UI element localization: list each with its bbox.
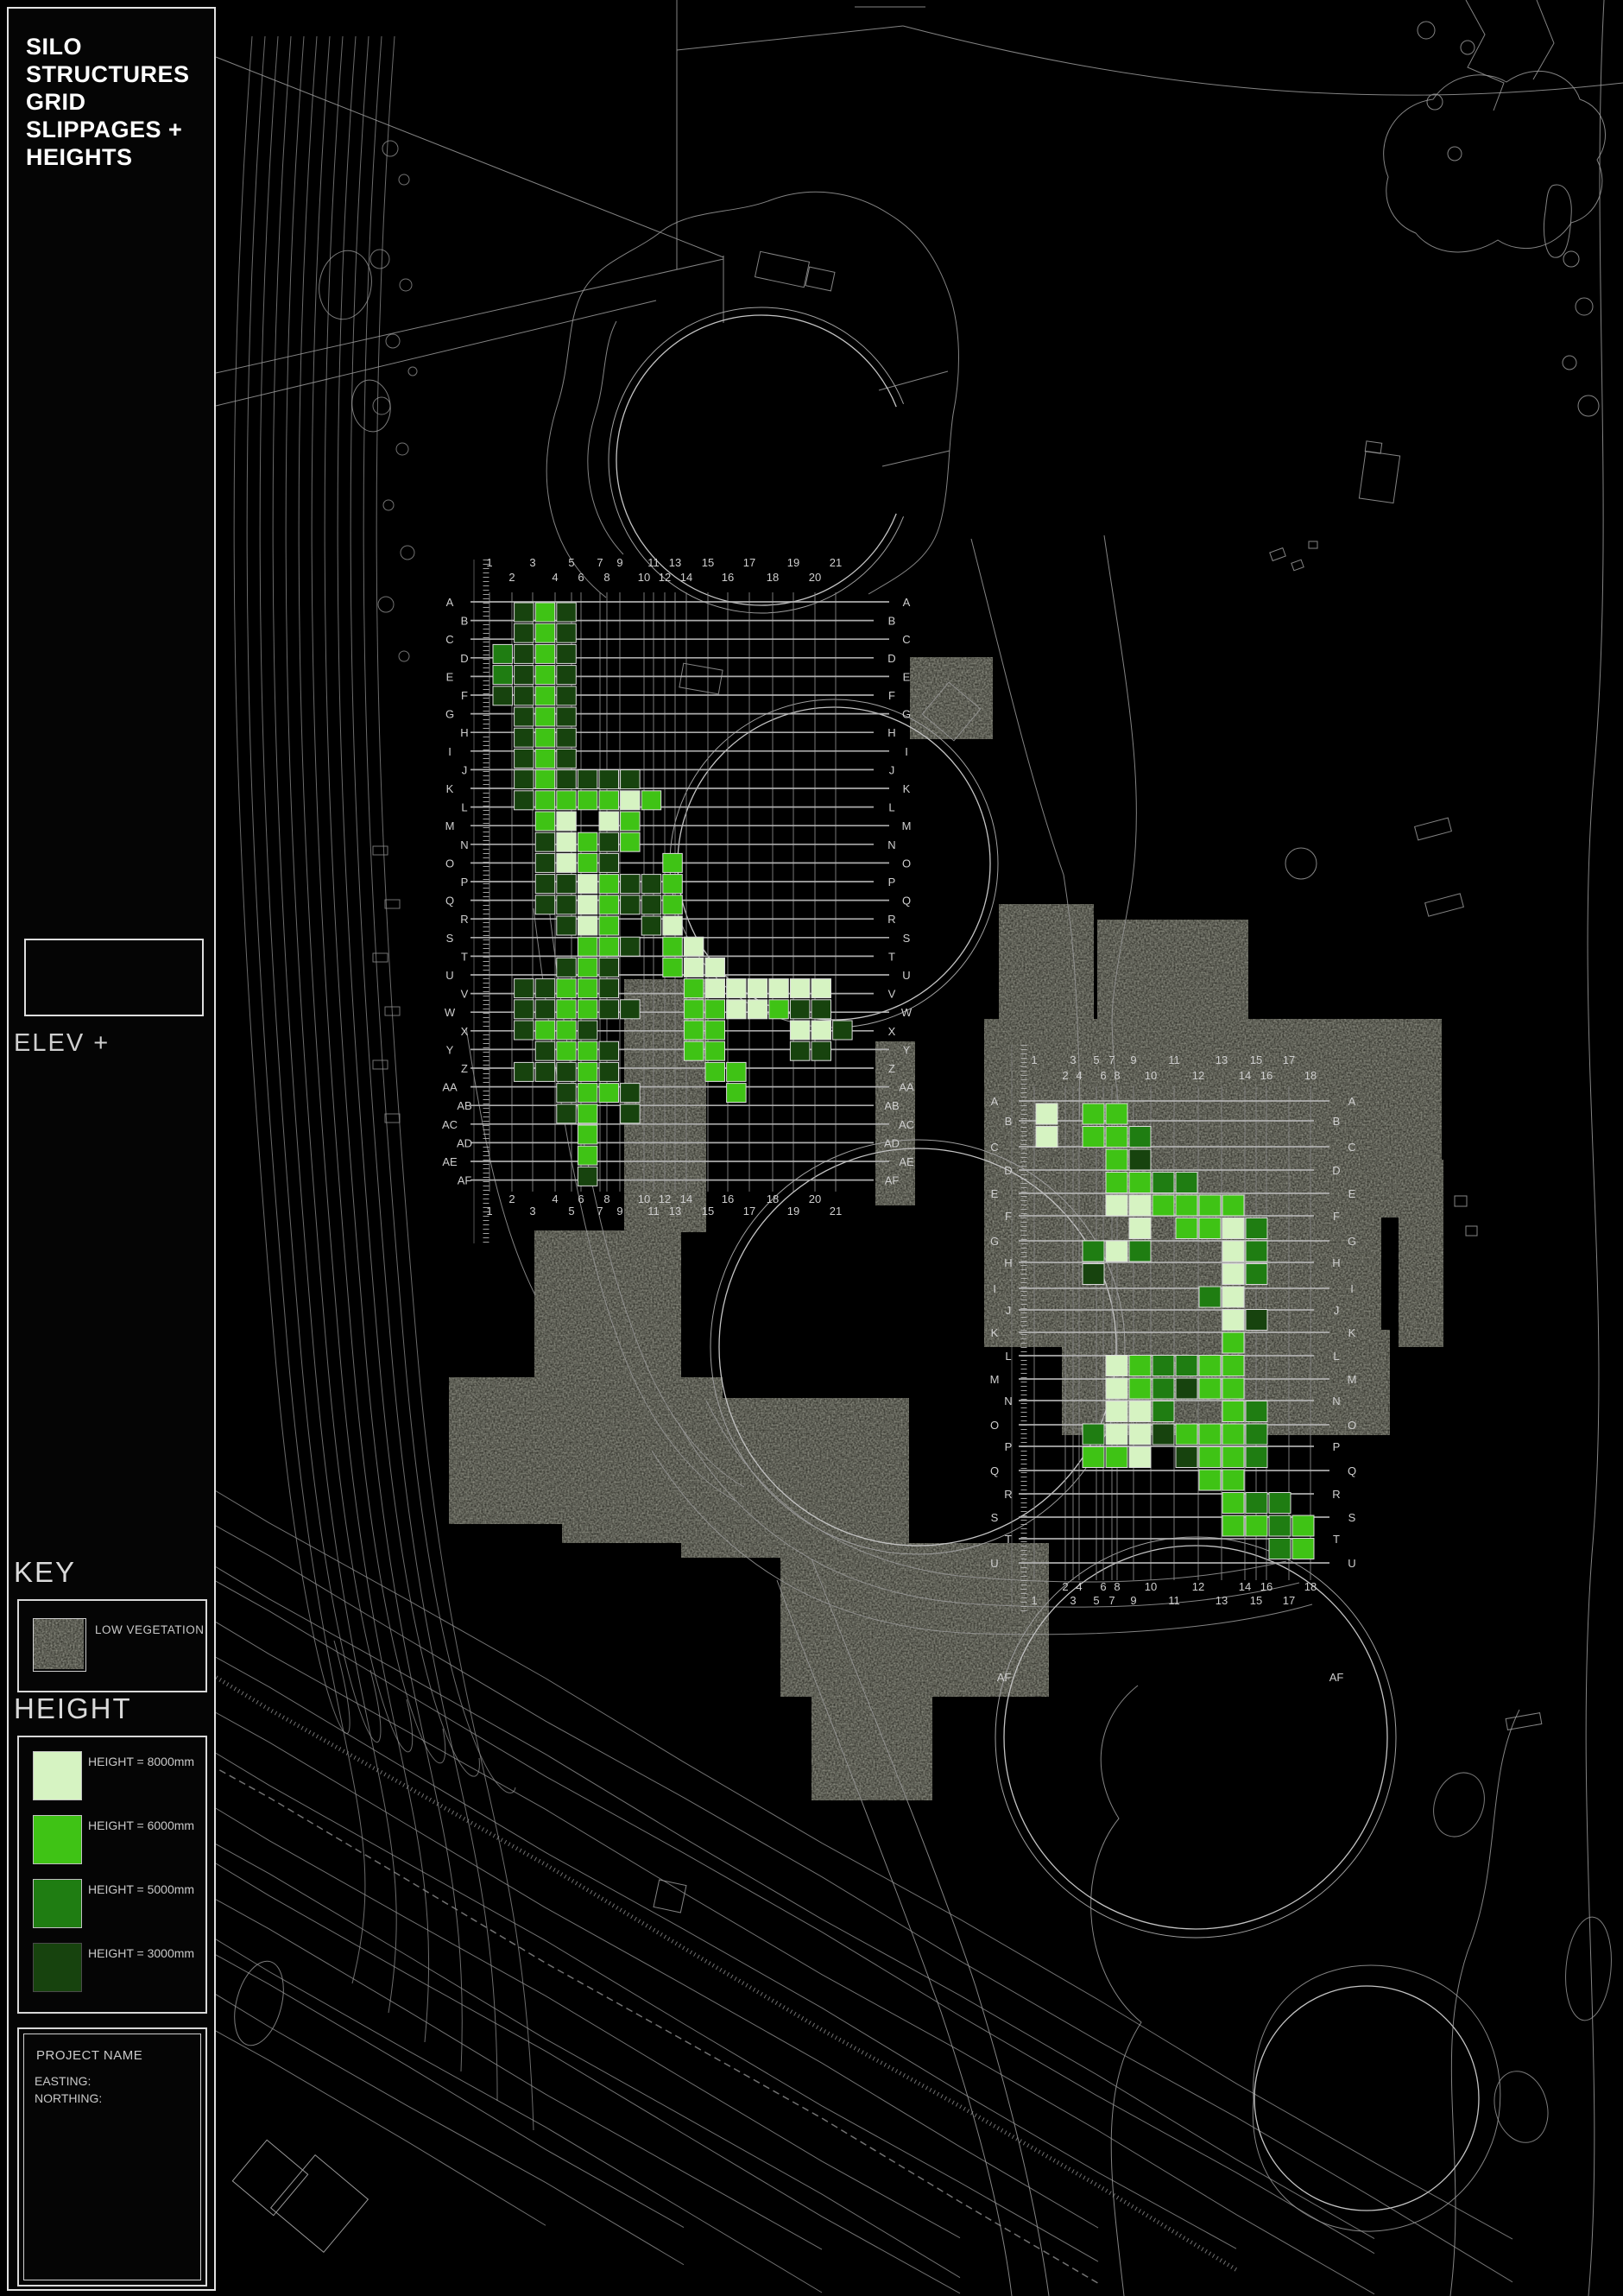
building-outline [1506, 1713, 1542, 1730]
building-outline [679, 663, 723, 694]
height-cell [1153, 1378, 1174, 1399]
shore-structure [373, 1060, 388, 1069]
grid-label: K [903, 782, 911, 795]
shore-clump [400, 279, 412, 291]
height-cell [1199, 1195, 1221, 1216]
contour-path [1091, 1686, 1141, 2296]
grid-label: N [1332, 1395, 1340, 1407]
grid-label: 19 [787, 1205, 799, 1218]
height-cell [1222, 1332, 1244, 1353]
grid-label: 7 [597, 556, 603, 569]
grid-label: 3 [1070, 1594, 1076, 1607]
contour-blob [1461, 41, 1475, 54]
shore-clump [378, 597, 394, 612]
height-cell [684, 979, 704, 998]
height-cell [557, 644, 577, 663]
height-cell [1129, 1195, 1151, 1216]
height-cell [535, 895, 555, 914]
grid-label: 13 [669, 556, 681, 569]
height-cell [557, 686, 577, 705]
grid-label: AF [885, 1174, 900, 1187]
contour-path [1586, 0, 1604, 2296]
height-cell [1222, 1515, 1244, 1536]
height-cell [1222, 1424, 1244, 1445]
shore-clump [370, 250, 389, 269]
shore-clump [401, 546, 414, 560]
height-cell [599, 937, 619, 956]
silo-circle [1254, 1986, 1479, 2211]
height-cell [1176, 1218, 1197, 1239]
height-cell [790, 1000, 810, 1019]
grid-label: D [887, 652, 895, 665]
grid-label: B [1333, 1115, 1341, 1128]
easting-label: EASTING: [35, 2074, 91, 2088]
vegetation-patch-texture [910, 657, 993, 739]
grid-label: A [991, 1095, 999, 1108]
height-cell [557, 979, 577, 998]
height-cell [1246, 1493, 1267, 1514]
grid-label: M [445, 819, 455, 832]
grid-label: H [460, 726, 468, 739]
height-cell [1222, 1401, 1244, 1422]
grid-label: 10 [638, 1192, 650, 1205]
grid-label: 9 [616, 1205, 622, 1218]
vegetation-patch-texture [449, 1377, 562, 1524]
building-outline [1425, 894, 1464, 916]
height-cell [1222, 1310, 1244, 1331]
grid-label: K [1348, 1326, 1356, 1339]
height-cell [1083, 1424, 1104, 1445]
contour-path [546, 192, 958, 598]
contour-blob [1576, 298, 1593, 315]
building-outline [805, 267, 835, 291]
height-cell [1106, 1378, 1127, 1399]
building-outline [755, 251, 810, 287]
height-cell [557, 603, 577, 622]
contour-path [260, 36, 381, 1743]
grid-label: I [448, 745, 452, 758]
vegetation-patch-texture [811, 1692, 932, 1800]
height-cell [1222, 1470, 1244, 1490]
height-cell [557, 1021, 577, 1040]
grid-label: AE [899, 1155, 914, 1168]
height-cell [557, 1000, 577, 1019]
height-cell [599, 1084, 619, 1103]
grid-label: 17 [743, 556, 755, 569]
height-cell [535, 707, 555, 726]
grid-label: B [461, 615, 469, 628]
height-cell [578, 1167, 597, 1186]
grid-label: W [445, 1006, 456, 1019]
grid-label: Y [446, 1043, 454, 1056]
height-cell [811, 1000, 831, 1019]
grid-label: Q [445, 895, 454, 908]
grid-label: 9 [1130, 1053, 1136, 1066]
height-cell [599, 916, 619, 935]
height-cell [535, 1000, 555, 1019]
height-swatch-label: HEIGHT = 8000mm [88, 1755, 194, 1768]
contour-path [131, 1572, 1374, 2294]
height-legend-item: HEIGHT = 3000mm [19, 1943, 205, 2003]
grid-label: H [1004, 1256, 1012, 1269]
height-swatch-label: HEIGHT = 3000mm [88, 1946, 194, 1960]
height-cell [1153, 1173, 1174, 1193]
height-cell [1199, 1378, 1221, 1399]
grid-label: 6 [1100, 1580, 1106, 1593]
height-cell [1036, 1127, 1058, 1148]
key-heading: KEY [14, 1556, 76, 1589]
shore-clump [386, 334, 400, 348]
grid-label: C [445, 633, 453, 646]
grid-label: L [1333, 1350, 1339, 1363]
height-cell [1153, 1356, 1174, 1376]
height-cell [833, 1021, 853, 1040]
height-cell [1153, 1424, 1174, 1445]
grid-label: M [902, 819, 912, 832]
grid-label: 7 [1108, 1594, 1115, 1607]
grid-label: D [1004, 1164, 1012, 1177]
contour-path [131, 1757, 960, 2238]
shore-clump [399, 651, 409, 661]
grid-label: D [1332, 1164, 1340, 1177]
grid-label: 11 [647, 556, 660, 569]
height-cell [515, 686, 534, 705]
shore-clump [373, 397, 390, 414]
height-cell [1199, 1470, 1221, 1490]
height-cell [578, 791, 597, 810]
height-cell [811, 1041, 831, 1060]
height-heading: HEIGHT [14, 1692, 132, 1725]
height-cell [515, 644, 534, 663]
height-legend-item: HEIGHT = 5000mm [19, 1879, 205, 1939]
title-line: SLIPPAGES + [26, 116, 190, 143]
grid-label: S [1348, 1511, 1356, 1524]
height-cell [641, 895, 661, 914]
height-cell [663, 875, 683, 894]
grid-label: 16 [1260, 1069, 1273, 1082]
height-cell [705, 1021, 725, 1040]
height-cell [557, 875, 577, 894]
height-cell [515, 666, 534, 685]
grid-label: O [1348, 1419, 1356, 1432]
height-cell [684, 958, 704, 977]
height-cell [557, 895, 577, 914]
height-cell [663, 916, 683, 935]
grid-label: AB [457, 1099, 471, 1112]
grid-label: 7 [1108, 1053, 1115, 1066]
height-cell [1106, 1149, 1127, 1170]
height-cell [515, 728, 534, 747]
height-swatch [33, 1751, 82, 1800]
building-outline [1365, 441, 1381, 453]
grid-label: 12 [659, 1192, 671, 1205]
contour-path [299, 36, 428, 2042]
height-cell [663, 958, 683, 977]
grid-label: 3 [529, 1205, 535, 1218]
height-cell [641, 916, 661, 935]
height-cell [705, 1062, 725, 1081]
grid-label: 18 [767, 571, 779, 584]
height-cell [1292, 1515, 1314, 1536]
height-cell [1176, 1447, 1197, 1468]
height-cell [1269, 1539, 1291, 1559]
contour-path [247, 36, 365, 1983]
contour-blob [1563, 356, 1576, 370]
grid-label: AF [997, 1671, 1012, 1684]
height-cell [1153, 1401, 1174, 1422]
height-cell [663, 853, 683, 872]
building-outline [1455, 1196, 1467, 1206]
grid-label: C [990, 1141, 998, 1154]
grid-label: P [888, 876, 896, 889]
height-cell [535, 832, 555, 851]
height-cell [578, 979, 597, 998]
drawing-title: SILO STRUCTURES GRID SLIPPAGES + HEIGHTS [26, 33, 190, 171]
height-cell [1129, 1356, 1151, 1376]
height-cell [1246, 1424, 1267, 1445]
height-cell [1222, 1218, 1244, 1239]
height-cell [790, 1041, 810, 1060]
grid-label: 14 [1239, 1580, 1251, 1593]
height-cell [535, 666, 555, 685]
height-cell [769, 979, 789, 998]
grid-label: A [446, 596, 454, 609]
grid-label: 5 [568, 556, 574, 569]
grid-label: 21 [830, 556, 842, 569]
low-vegetation-swatch [33, 1618, 86, 1672]
height-cell [535, 770, 555, 789]
grid-label: O [990, 1419, 999, 1432]
grid-label: O [902, 857, 911, 870]
height-cell [1129, 1218, 1151, 1239]
height-cell [621, 875, 641, 894]
grid-label: C [1348, 1141, 1355, 1154]
height-cell [1129, 1447, 1151, 1468]
contour-path [216, 300, 656, 406]
height-cell [1106, 1401, 1127, 1422]
grid-label: AE [442, 1155, 458, 1168]
height-cell [1176, 1378, 1197, 1399]
height-cell [1199, 1447, 1221, 1468]
grid-label: 8 [603, 1192, 609, 1205]
drawing-sheet: 1122334455667788991010111112121313141415… [0, 0, 1623, 2296]
shore-clump [382, 141, 398, 156]
project-name-label: PROJECT NAME [36, 2048, 142, 2063]
height-cell [790, 979, 810, 998]
elevation-label: ELEV + [14, 1029, 110, 1058]
grid-label: 10 [1145, 1580, 1157, 1593]
height-cell [599, 791, 619, 810]
height-cell [1222, 1378, 1244, 1399]
height-cell [578, 1104, 597, 1123]
grid-label: E [991, 1187, 999, 1200]
contour-path [312, 36, 445, 1763]
height-cell [599, 812, 619, 831]
height-legend: HEIGHT = 8000mmHEIGHT = 6000mmHEIGHT = 5… [17, 1736, 207, 2014]
grid-label: Z [888, 1062, 895, 1075]
height-cell [1106, 1127, 1127, 1148]
height-cell [621, 1104, 641, 1123]
contour-path [131, 1626, 1236, 2269]
grid-label: 3 [1070, 1053, 1076, 1066]
height-cell [515, 603, 534, 622]
low-vegetation-label: LOW VEGETATION [95, 1623, 205, 1636]
grid-label: 9 [1130, 1594, 1136, 1607]
grid-label: P [1333, 1440, 1341, 1453]
grid-label: J [889, 763, 895, 776]
grid-label: 13 [669, 1205, 681, 1218]
grid-label: AA [442, 1081, 458, 1094]
grid-label: 11 [647, 1205, 660, 1218]
contour-path [131, 1666, 1098, 2228]
contour-path [131, 1534, 1374, 2253]
height-cell [727, 979, 747, 998]
grid-label: M [990, 1373, 1000, 1386]
height-cell [578, 916, 597, 935]
height-legend-item: HEIGHT = 6000mm [19, 1815, 205, 1875]
grid-label: 18 [1304, 1069, 1317, 1082]
height-cell [599, 958, 619, 977]
height-cell [578, 1041, 597, 1060]
height-cell [811, 1021, 831, 1040]
height-cell [493, 666, 513, 685]
height-cell [599, 853, 619, 872]
grid-label: 12 [1192, 1580, 1204, 1593]
height-cell [790, 1021, 810, 1040]
shore-clump [399, 174, 409, 185]
height-legend-item: HEIGHT = 8000mm [19, 1751, 205, 1812]
contour-path [216, 57, 723, 257]
grid-label: AF [1329, 1671, 1344, 1684]
height-cell [641, 875, 661, 894]
grid-label: W [901, 1006, 913, 1019]
height-cell [599, 875, 619, 894]
grid-label: X [461, 1025, 469, 1038]
height-cell [557, 1104, 577, 1123]
height-cell [1036, 1104, 1058, 1124]
grid-label: 1 [1031, 1594, 1037, 1607]
height-cell [557, 832, 577, 851]
height-cell [578, 770, 597, 789]
height-cell [535, 749, 555, 768]
contour-path [131, 1702, 1098, 2261]
grid-label: L [1005, 1350, 1011, 1363]
height-swatch [33, 1879, 82, 1928]
grid-label: 4 [1076, 1069, 1082, 1082]
contour-blob [226, 1956, 292, 2051]
contour-path [1253, 1965, 1500, 2231]
contour-blob [1425, 1766, 1494, 1844]
height-cell [1246, 1310, 1267, 1331]
height-cell [727, 1062, 747, 1081]
height-cell [1106, 1173, 1127, 1193]
grid-label: 11 [1168, 1053, 1180, 1066]
silo-circle [1004, 1546, 1387, 1929]
grid-label: 7 [597, 1205, 603, 1218]
height-swatch [33, 1943, 82, 1992]
grid-label: Z [461, 1062, 468, 1075]
grid-label: G [902, 708, 911, 721]
height-cell [493, 686, 513, 705]
grid-label: 21 [830, 1205, 842, 1218]
height-cell [1222, 1241, 1244, 1262]
project-box: PROJECT NAME EASTING: NORTHING: [17, 2027, 207, 2287]
contour-blob [1285, 848, 1317, 879]
height-cell [515, 791, 534, 810]
grid-label: 20 [809, 1192, 821, 1205]
height-cell [811, 979, 831, 998]
grid-label: E [903, 670, 911, 683]
height-swatch-label: HEIGHT = 5000mm [88, 1882, 194, 1896]
grid-label: 4 [1076, 1580, 1082, 1593]
vegetation-patch-texture [999, 904, 1094, 1019]
grid-label: N [1004, 1395, 1012, 1407]
contour-blob [1578, 395, 1599, 416]
grid-label: 16 [722, 571, 734, 584]
grid-label: AC [899, 1118, 914, 1131]
height-cell [535, 644, 555, 663]
key-box: LOW VEGETATION [17, 1599, 207, 1692]
grid-label: 15 [702, 1205, 714, 1218]
vegetation-patch-texture [534, 1230, 681, 1400]
contour-path [1450, 1710, 1519, 2296]
vegetation-patch-texture [1399, 1160, 1443, 1347]
height-cell [557, 1041, 577, 1060]
grid-label: S [903, 932, 911, 945]
vegetation-patch-texture [1097, 920, 1248, 1019]
height-cell [748, 979, 767, 998]
grid-label: J [1334, 1304, 1340, 1317]
grid-label: L [888, 801, 894, 814]
grid-label: T [888, 950, 895, 963]
vegetation-patches-texture [449, 657, 1443, 1800]
grid-label: 3 [529, 556, 535, 569]
contour-path [273, 36, 396, 2013]
height-cell [557, 1062, 577, 1081]
height-cell [1176, 1195, 1197, 1216]
grid-label: S [991, 1511, 999, 1524]
height-cell [621, 791, 641, 810]
height-cell [641, 791, 661, 810]
height-cell [515, 770, 534, 789]
grid-label: Q [902, 895, 911, 908]
grid-label: K [991, 1326, 999, 1339]
building-outline [271, 2155, 369, 2253]
grid-label: 2 [508, 571, 515, 584]
height-cell [515, 623, 534, 642]
grid-label: 2 [1062, 1069, 1068, 1082]
height-cell [535, 686, 555, 705]
height-cell [1246, 1241, 1267, 1262]
height-cell [663, 895, 683, 914]
grid-label: 12 [659, 571, 671, 584]
height-cell [578, 1084, 597, 1103]
title-line: GRID [26, 88, 190, 116]
grid-label: 1 [486, 1205, 492, 1218]
title-line: STRUCTURES [26, 60, 190, 88]
height-cell [621, 1084, 641, 1103]
height-cell [1246, 1218, 1267, 1239]
grid-label: J [462, 763, 468, 776]
grid-label: 9 [616, 556, 622, 569]
height-cell [557, 853, 577, 872]
grid-label: 14 [680, 1192, 692, 1205]
elevation-box [24, 939, 204, 1016]
height-swatch-label: HEIGHT = 6000mm [88, 1818, 194, 1832]
height-cell [578, 958, 597, 977]
grid-label: A [1348, 1095, 1356, 1108]
height-cell [557, 916, 577, 935]
